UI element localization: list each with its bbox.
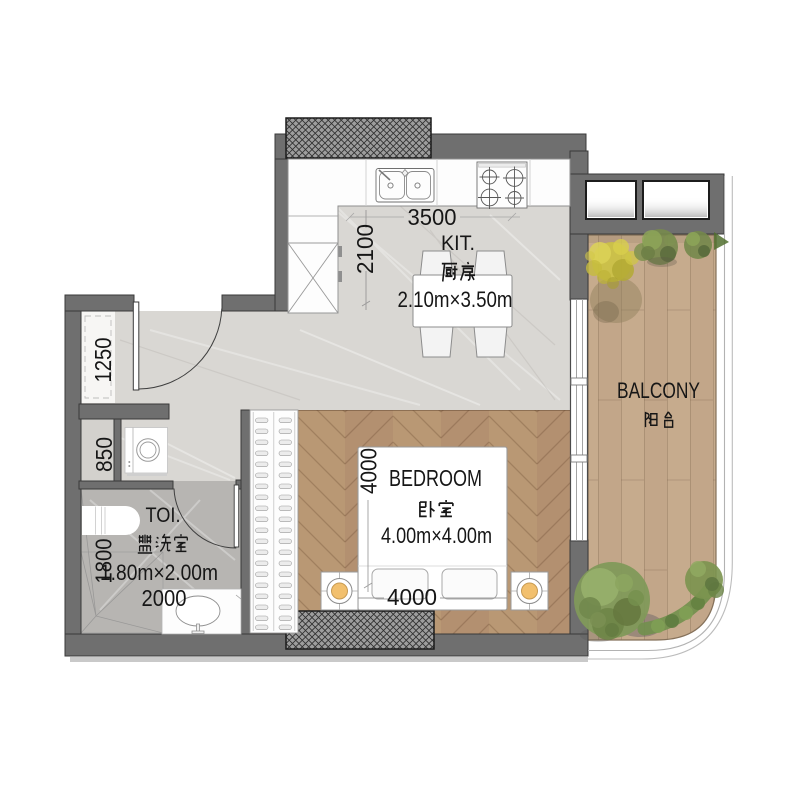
svg-text:2.10m×3.50m: 2.10m×3.50m bbox=[398, 287, 513, 312]
svg-text:2100: 2100 bbox=[352, 224, 378, 274]
svg-text:BEDROOM: BEDROOM bbox=[389, 465, 482, 491]
svg-text:1.80m×2.00m: 1.80m×2.00m bbox=[100, 560, 218, 585]
svg-text:2000: 2000 bbox=[142, 585, 187, 611]
svg-text:4.00m×4.00m: 4.00m×4.00m bbox=[381, 523, 492, 548]
svg-text:BALCONY: BALCONY bbox=[617, 378, 700, 403]
svg-text:850: 850 bbox=[91, 437, 117, 472]
svg-text:TOI.: TOI. bbox=[146, 504, 181, 527]
svg-text:4000: 4000 bbox=[387, 584, 437, 610]
svg-text:KIT.: KIT. bbox=[441, 232, 475, 255]
svg-text:1250: 1250 bbox=[90, 338, 116, 383]
svg-text:3500: 3500 bbox=[408, 204, 457, 230]
svg-text:4000: 4000 bbox=[356, 448, 382, 494]
